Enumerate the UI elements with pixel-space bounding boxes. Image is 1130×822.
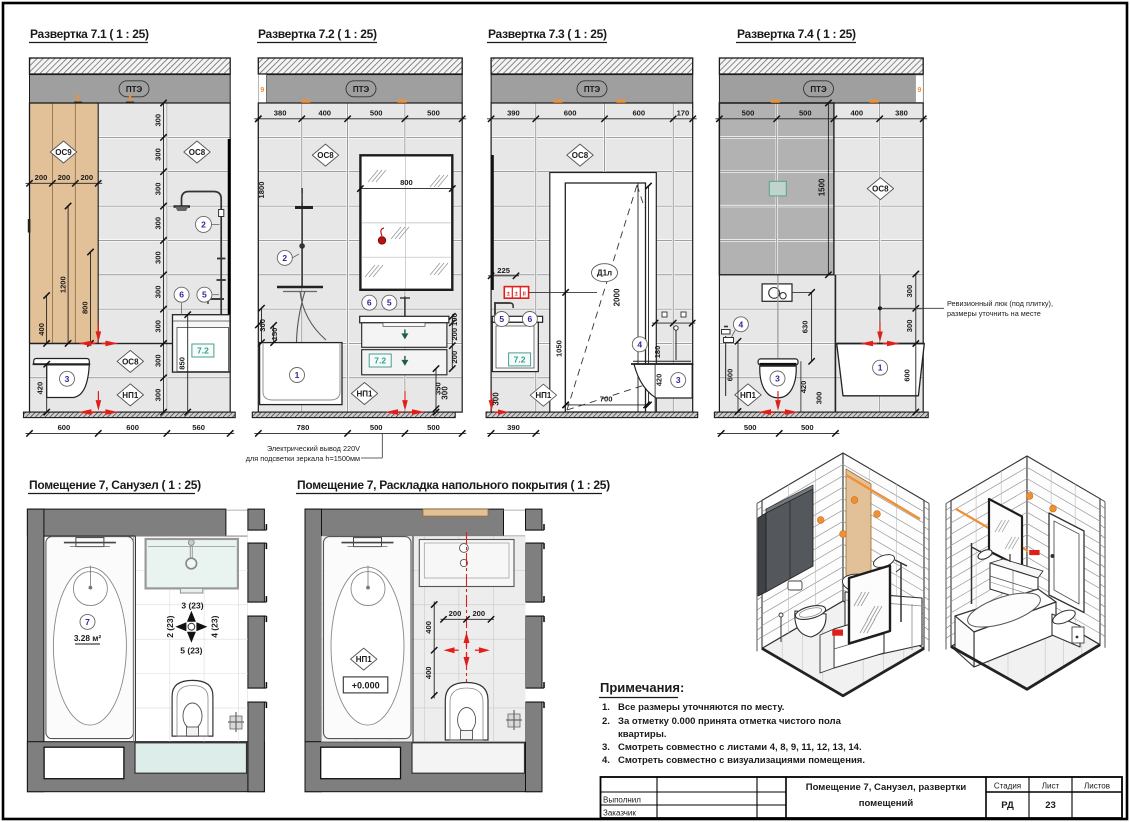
svg-text:380: 380 [895,109,908,118]
svg-text:НП1: НП1 [740,391,757,400]
svg-text:300: 300 [905,285,914,298]
svg-text:Д1л: Д1л [597,269,612,278]
svg-text:700: 700 [600,395,613,404]
svg-text:400: 400 [850,109,863,118]
svg-text:630: 630 [801,321,810,334]
svg-text:225: 225 [497,266,510,275]
svg-text:2: 2 [201,219,206,229]
svg-text:500: 500 [427,109,440,118]
svg-text:500: 500 [742,109,755,118]
svg-text:9: 9 [260,87,264,94]
svg-text:Развертка 7.3 ( 1 : 25): Развертка 7.3 ( 1 : 25) [488,27,607,41]
svg-text:Смотреть совместно с листами 4: Смотреть совместно с листами 4, 8, 9, 11… [618,742,862,753]
svg-text:9: 9 [917,87,921,94]
svg-text:ПТЭ: ПТЭ [584,85,601,94]
svg-text:Помещение 7, Санузел ( 1 : 25): Помещение 7, Санузел ( 1 : 25) [29,478,201,492]
svg-text:1.: 1. [602,702,610,713]
svg-text:600: 600 [58,423,71,432]
svg-text:Развертка 7.1 ( 1 : 25): Развертка 7.1 ( 1 : 25) [30,27,149,41]
svg-text:500: 500 [370,109,383,118]
svg-text:200: 200 [58,173,71,182]
svg-text:+0.000: +0.000 [352,680,380,690]
svg-text:3: 3 [65,374,70,384]
svg-text:1200: 1200 [58,276,67,293]
svg-text:ПТЭ: ПТЭ [810,85,827,94]
svg-text:600: 600 [726,369,735,382]
svg-text:Помещение 7, Санузел, развертк: Помещение 7, Санузел, развертки [806,782,967,793]
svg-text:ОС9: ОС9 [55,148,72,157]
svg-text:600: 600 [126,423,139,432]
svg-text:для подсветки зеркала h=1500мм: для подсветки зеркала h=1500мм [246,454,360,463]
svg-text:4: 4 [739,319,744,329]
svg-text:За отметку 0.000 принята отмет: За отметку 0.000 принята отметка чистого… [618,716,842,727]
svg-text:500: 500 [801,423,814,432]
svg-text:2000: 2000 [612,288,621,306]
svg-text:1050: 1050 [555,340,564,357]
svg-text:5 (23): 5 (23) [180,646,202,656]
svg-text:300: 300 [154,354,163,367]
svg-text:Электрический вывод 220V: Электрический вывод 220V [267,444,360,453]
svg-text:420: 420 [36,382,45,395]
svg-text:Смотреть совместно с визуализа: Смотреть совместно с визуализациями поме… [618,755,865,766]
svg-text:1: 1 [295,370,300,380]
svg-text:420: 420 [655,374,664,387]
svg-text:4.: 4. [602,755,610,766]
svg-text:5: 5 [387,298,392,308]
svg-text:3.: 3. [602,742,610,753]
svg-text:5: 5 [202,290,207,300]
svg-text:200: 200 [80,173,93,182]
svg-text:300: 300 [154,114,163,127]
svg-text:500: 500 [744,423,757,432]
svg-text:300: 300 [154,286,163,299]
svg-text:300: 300 [154,251,163,264]
svg-text:II: II [523,291,527,297]
svg-text:Все размеры уточняются по мест: Все размеры уточняются по месту. [618,702,784,713]
svg-text:НП1: НП1 [356,655,373,664]
svg-text:300: 300 [441,386,450,400]
svg-text:2: 2 [282,253,287,263]
svg-text:6: 6 [179,290,184,300]
svg-text:200: 200 [449,609,462,618]
svg-text:Развертка 7.4 ( 1 : 25): Развертка 7.4 ( 1 : 25) [737,27,856,41]
svg-text:Выполнил: Выполнил [603,796,641,805]
svg-text:5: 5 [499,314,504,324]
svg-text:ПТЭ: ПТЭ [353,85,370,94]
svg-text:ОС8: ОС8 [189,148,206,157]
svg-text:Ревизионный люк (под плитку),: Ревизионный люк (под плитку), [947,299,1053,308]
svg-text:23: 23 [1045,800,1056,811]
svg-text:500: 500 [370,423,383,432]
svg-text:300: 300 [154,183,163,196]
svg-text:400: 400 [424,621,433,634]
svg-text:390: 390 [507,423,520,432]
svg-text:600: 600 [632,109,645,118]
svg-text:150: 150 [270,328,279,341]
svg-text:Заказчик: Заказчик [603,809,636,818]
svg-text:6: 6 [367,298,372,308]
svg-text:6: 6 [528,314,533,324]
svg-text:300: 300 [814,392,823,405]
svg-text:400: 400 [424,666,433,679]
svg-text:ОС8: ОС8 [872,185,889,194]
svg-text:380: 380 [274,109,287,118]
svg-text:1: 1 [878,363,883,373]
svg-text:300: 300 [154,389,163,402]
svg-text:300: 300 [905,320,914,333]
svg-text:7.2: 7.2 [514,355,526,365]
svg-text:780: 780 [297,423,310,432]
svg-text:НП1: НП1 [357,390,374,399]
svg-text:размеры уточнить на месте: размеры уточнить на месте [947,309,1041,318]
svg-text:400: 400 [318,109,331,118]
svg-text:1500: 1500 [817,178,826,196]
svg-text:600: 600 [902,369,911,382]
svg-text:300: 300 [258,319,267,332]
svg-text:2 (23): 2 (23) [165,615,175,637]
svg-text:НП1: НП1 [535,391,552,400]
svg-text:7.2: 7.2 [197,346,209,356]
svg-text:300: 300 [154,320,163,333]
svg-text:Лист: Лист [1042,782,1060,791]
svg-text:7.2: 7.2 [374,356,386,366]
svg-text:7: 7 [85,617,90,627]
svg-text:2.: 2. [602,716,610,727]
svg-text:ОС8: ОС8 [122,357,139,366]
svg-text:100: 100 [450,313,459,326]
svg-text:3: 3 [676,375,681,385]
svg-text:Стадия: Стадия [994,782,1021,791]
svg-text:200: 200 [472,609,485,618]
svg-text:200: 200 [35,173,48,182]
svg-text:Примечания:: Примечания: [600,680,684,695]
svg-text:390: 390 [507,109,520,118]
svg-text:1800: 1800 [257,182,266,199]
svg-text:600: 600 [564,109,577,118]
svg-text:4 (23): 4 (23) [210,615,220,637]
svg-text:Помещение 7, Раскладка напольн: Помещение 7, Раскладка напольного покрыт… [297,478,610,492]
svg-text:Листов: Листов [1084,782,1110,791]
svg-text:500: 500 [427,423,440,432]
svg-text:170: 170 [677,109,690,118]
svg-text:НП1: НП1 [122,391,139,400]
svg-text:300: 300 [154,148,163,161]
svg-text:200: 200 [450,328,459,341]
svg-text:500: 500 [799,109,812,118]
svg-text:180: 180 [653,346,662,359]
svg-text:3: 3 [775,374,780,384]
svg-text:800: 800 [400,178,413,187]
svg-text:560: 560 [192,423,205,432]
svg-text:400: 400 [37,323,46,336]
svg-text:420: 420 [799,381,808,394]
svg-text:РД: РД [1001,800,1014,811]
svg-text:ОС8: ОС8 [572,151,589,160]
svg-text:Развертка 7.2 ( 1 : 25): Развертка 7.2 ( 1 : 25) [258,27,377,41]
svg-text:помещений: помещений [859,798,914,809]
svg-text:300: 300 [491,392,500,406]
svg-text:200: 200 [450,351,459,364]
svg-text:ПТЭ: ПТЭ [126,85,143,94]
svg-text:300: 300 [154,217,163,230]
svg-text:850: 850 [178,357,187,370]
svg-text:3.28 м²: 3.28 м² [74,633,102,643]
svg-text:ОС8: ОС8 [317,151,334,160]
svg-text:квартиры.: квартиры. [618,729,666,740]
svg-text:3 (23): 3 (23) [181,601,203,611]
svg-text:800: 800 [81,301,90,314]
svg-text:4: 4 [637,339,642,349]
